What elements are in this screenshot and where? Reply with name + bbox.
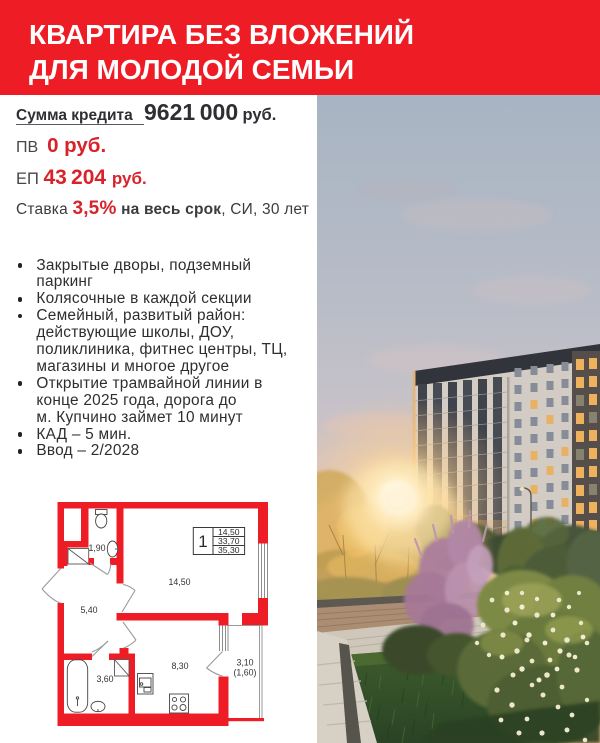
svg-text:5,40: 5,40 (80, 605, 97, 615)
svg-text:3,10: 3,10 (236, 658, 253, 668)
svg-text:14,50: 14,50 (168, 577, 190, 587)
svg-text:(1,60): (1,60) (234, 668, 257, 678)
svg-text:1: 1 (198, 532, 207, 551)
svg-text:3,60: 3,60 (96, 674, 113, 684)
svg-text:8,30: 8,30 (171, 661, 188, 671)
svg-text:35,30: 35,30 (218, 545, 240, 555)
svg-text:1,90: 1,90 (88, 543, 105, 553)
